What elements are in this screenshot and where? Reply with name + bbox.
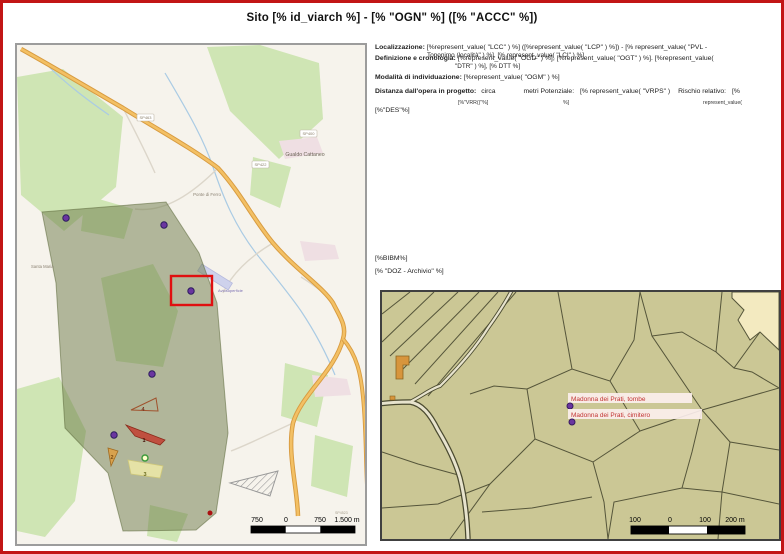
airstrip-label: Aviosuperficie	[218, 288, 244, 293]
shield-sp463: SP463	[139, 115, 152, 120]
label-rischio: Rischio relativo:	[678, 88, 726, 95]
scalebar-label: 100	[629, 517, 641, 524]
label-definizione: Definizione e cronologia:	[375, 55, 456, 62]
info-bibm: [%BIBM%]	[375, 255, 407, 263]
info-distanza: Distanza dall'opera in progetto: circa m…	[375, 88, 740, 96]
marker-tombe	[567, 403, 573, 409]
info-localizzazione: Localizzazione: [%represent_value( "LCC"…	[375, 44, 707, 52]
detail-map: Madonna dei Prati, tombe Madonna dei Pra…	[380, 290, 781, 541]
label-cimitero: Madonna dei Prati, cimitero	[571, 412, 651, 419]
marker-cimitero	[569, 419, 575, 425]
value-circa: circa	[481, 88, 495, 95]
value-localizzazione: [%represent_value( "LCC" ) %] ([%represe…	[427, 44, 707, 51]
label-distanza: Distanza dall'opera in progetto:	[375, 88, 476, 95]
label-tombe: Madonna dei Prati, tombe	[571, 396, 646, 403]
scalebar-label: 200 m	[725, 517, 745, 524]
overflow-represent-value: represent_value(	[703, 99, 742, 107]
feature-3-number: 3	[143, 472, 146, 478]
scalebar-label: 0	[284, 517, 288, 524]
shield-sp400: SP400	[302, 131, 315, 136]
overflow-vrr: [%"VRR()"%]	[458, 99, 488, 107]
red-dot-marker	[208, 511, 213, 516]
town-label: Gualdo Cattaneo	[285, 152, 324, 158]
info-doz: [% "DOZ - Archivio" %]	[375, 268, 444, 276]
overview-map: Aviosuperficie 4 1 2 3	[15, 43, 367, 546]
report-page: Sito [% id_viarch %] - [% "OGN" %] ([% "…	[0, 0, 784, 554]
detail-map-canvas: Madonna dei Prati, tombe Madonna dei Pra…	[382, 292, 779, 539]
place-label-1: Ponte di Ferro	[193, 192, 221, 197]
value-definizione: [%represent_value( "OGD" ) %], [%represe…	[458, 55, 714, 62]
info-modalita: Modalità di individuazione: [%represent_…	[375, 74, 560, 82]
feature-2-number: 2	[110, 455, 113, 461]
scalebar-label: 750	[251, 517, 263, 524]
value-modalita: [%represent_value( "OGM" ) %]	[464, 74, 560, 81]
value-rischio-open: [%	[732, 88, 740, 95]
label-localizzazione: Localizzazione:	[375, 44, 425, 51]
overflow-close: %]	[563, 99, 569, 107]
shield-sp4523: SP4523	[335, 511, 348, 515]
scalebar-label: 100	[699, 517, 711, 524]
info-definizione: Definizione e cronologia: [%represent_va…	[375, 55, 714, 63]
place-label-2: Santa Maria	[31, 264, 54, 269]
info-definizione-overflow: "DTR" ) %], [% DTT %]	[455, 63, 520, 71]
scalebar-label: 0	[668, 517, 672, 524]
value-vrps: [% represent_value( "VRPS" )	[580, 88, 670, 95]
scalebar-label: 750	[314, 517, 326, 524]
label-metri-potenziale: metri Potenziale:	[523, 88, 574, 95]
shield-sp422: SP422	[254, 162, 267, 167]
scalebar-label: 1.500 m	[334, 517, 359, 524]
label-modalita: Modalità di individuazione:	[375, 74, 462, 81]
green-ring-marker	[142, 455, 148, 461]
feature-1-number: 1	[142, 438, 145, 444]
page-title: Sito [% id_viarch %] - [% "OGN" %] ([% "…	[3, 12, 781, 24]
overview-map-canvas: Aviosuperficie 4 1 2 3	[17, 45, 365, 544]
info-des: [%"DES"%]	[375, 107, 410, 115]
